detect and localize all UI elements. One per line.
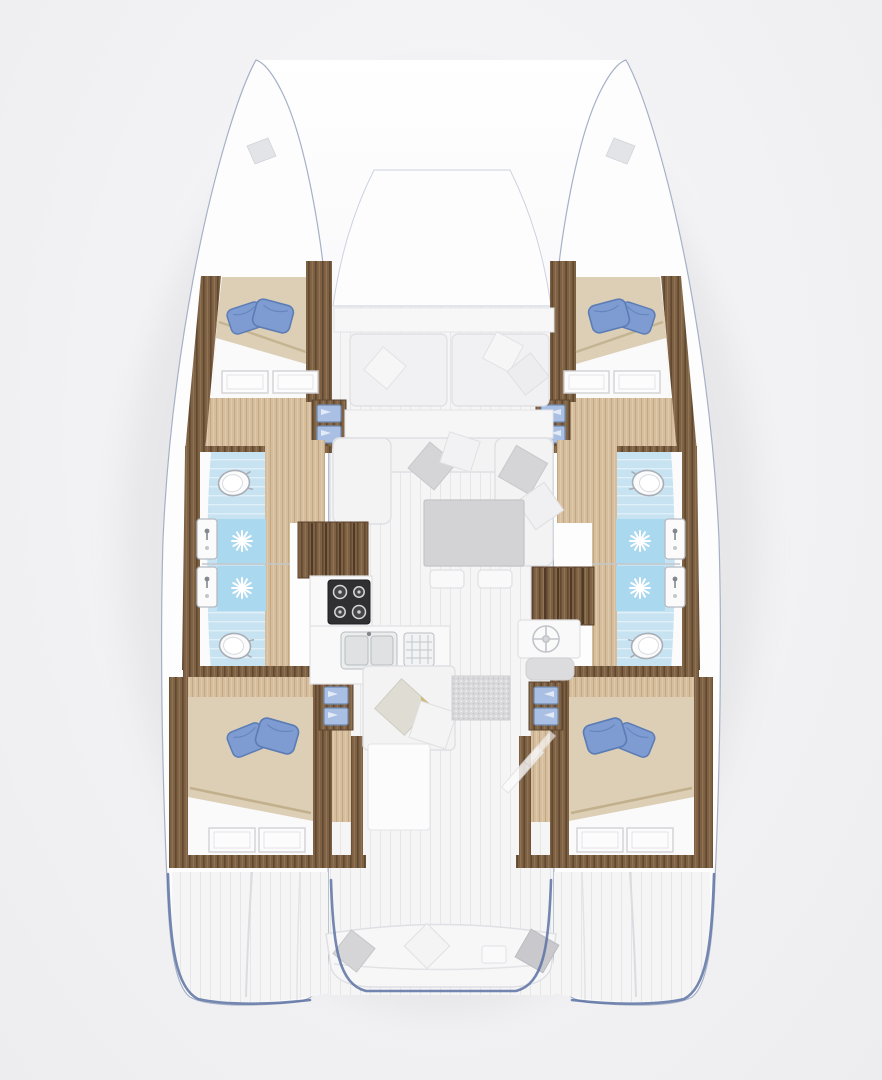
nav-station xyxy=(518,620,580,680)
nav-seat xyxy=(526,658,574,680)
front-bench-back xyxy=(334,308,554,332)
forward-cockpit xyxy=(333,170,551,306)
stairs-starboard xyxy=(532,567,594,625)
cockpit-tray xyxy=(482,946,506,963)
floor-plan-svg xyxy=(0,0,882,1080)
rug xyxy=(452,676,510,720)
ottoman xyxy=(430,570,464,588)
stairs-port xyxy=(298,522,368,578)
floor-plan-canvas xyxy=(0,0,882,1080)
helm-wheel-icon xyxy=(533,626,559,652)
sofa-arm-left xyxy=(333,438,391,524)
cockpit-module xyxy=(368,744,430,830)
ottoman xyxy=(478,570,512,588)
saloon-table xyxy=(424,500,524,566)
